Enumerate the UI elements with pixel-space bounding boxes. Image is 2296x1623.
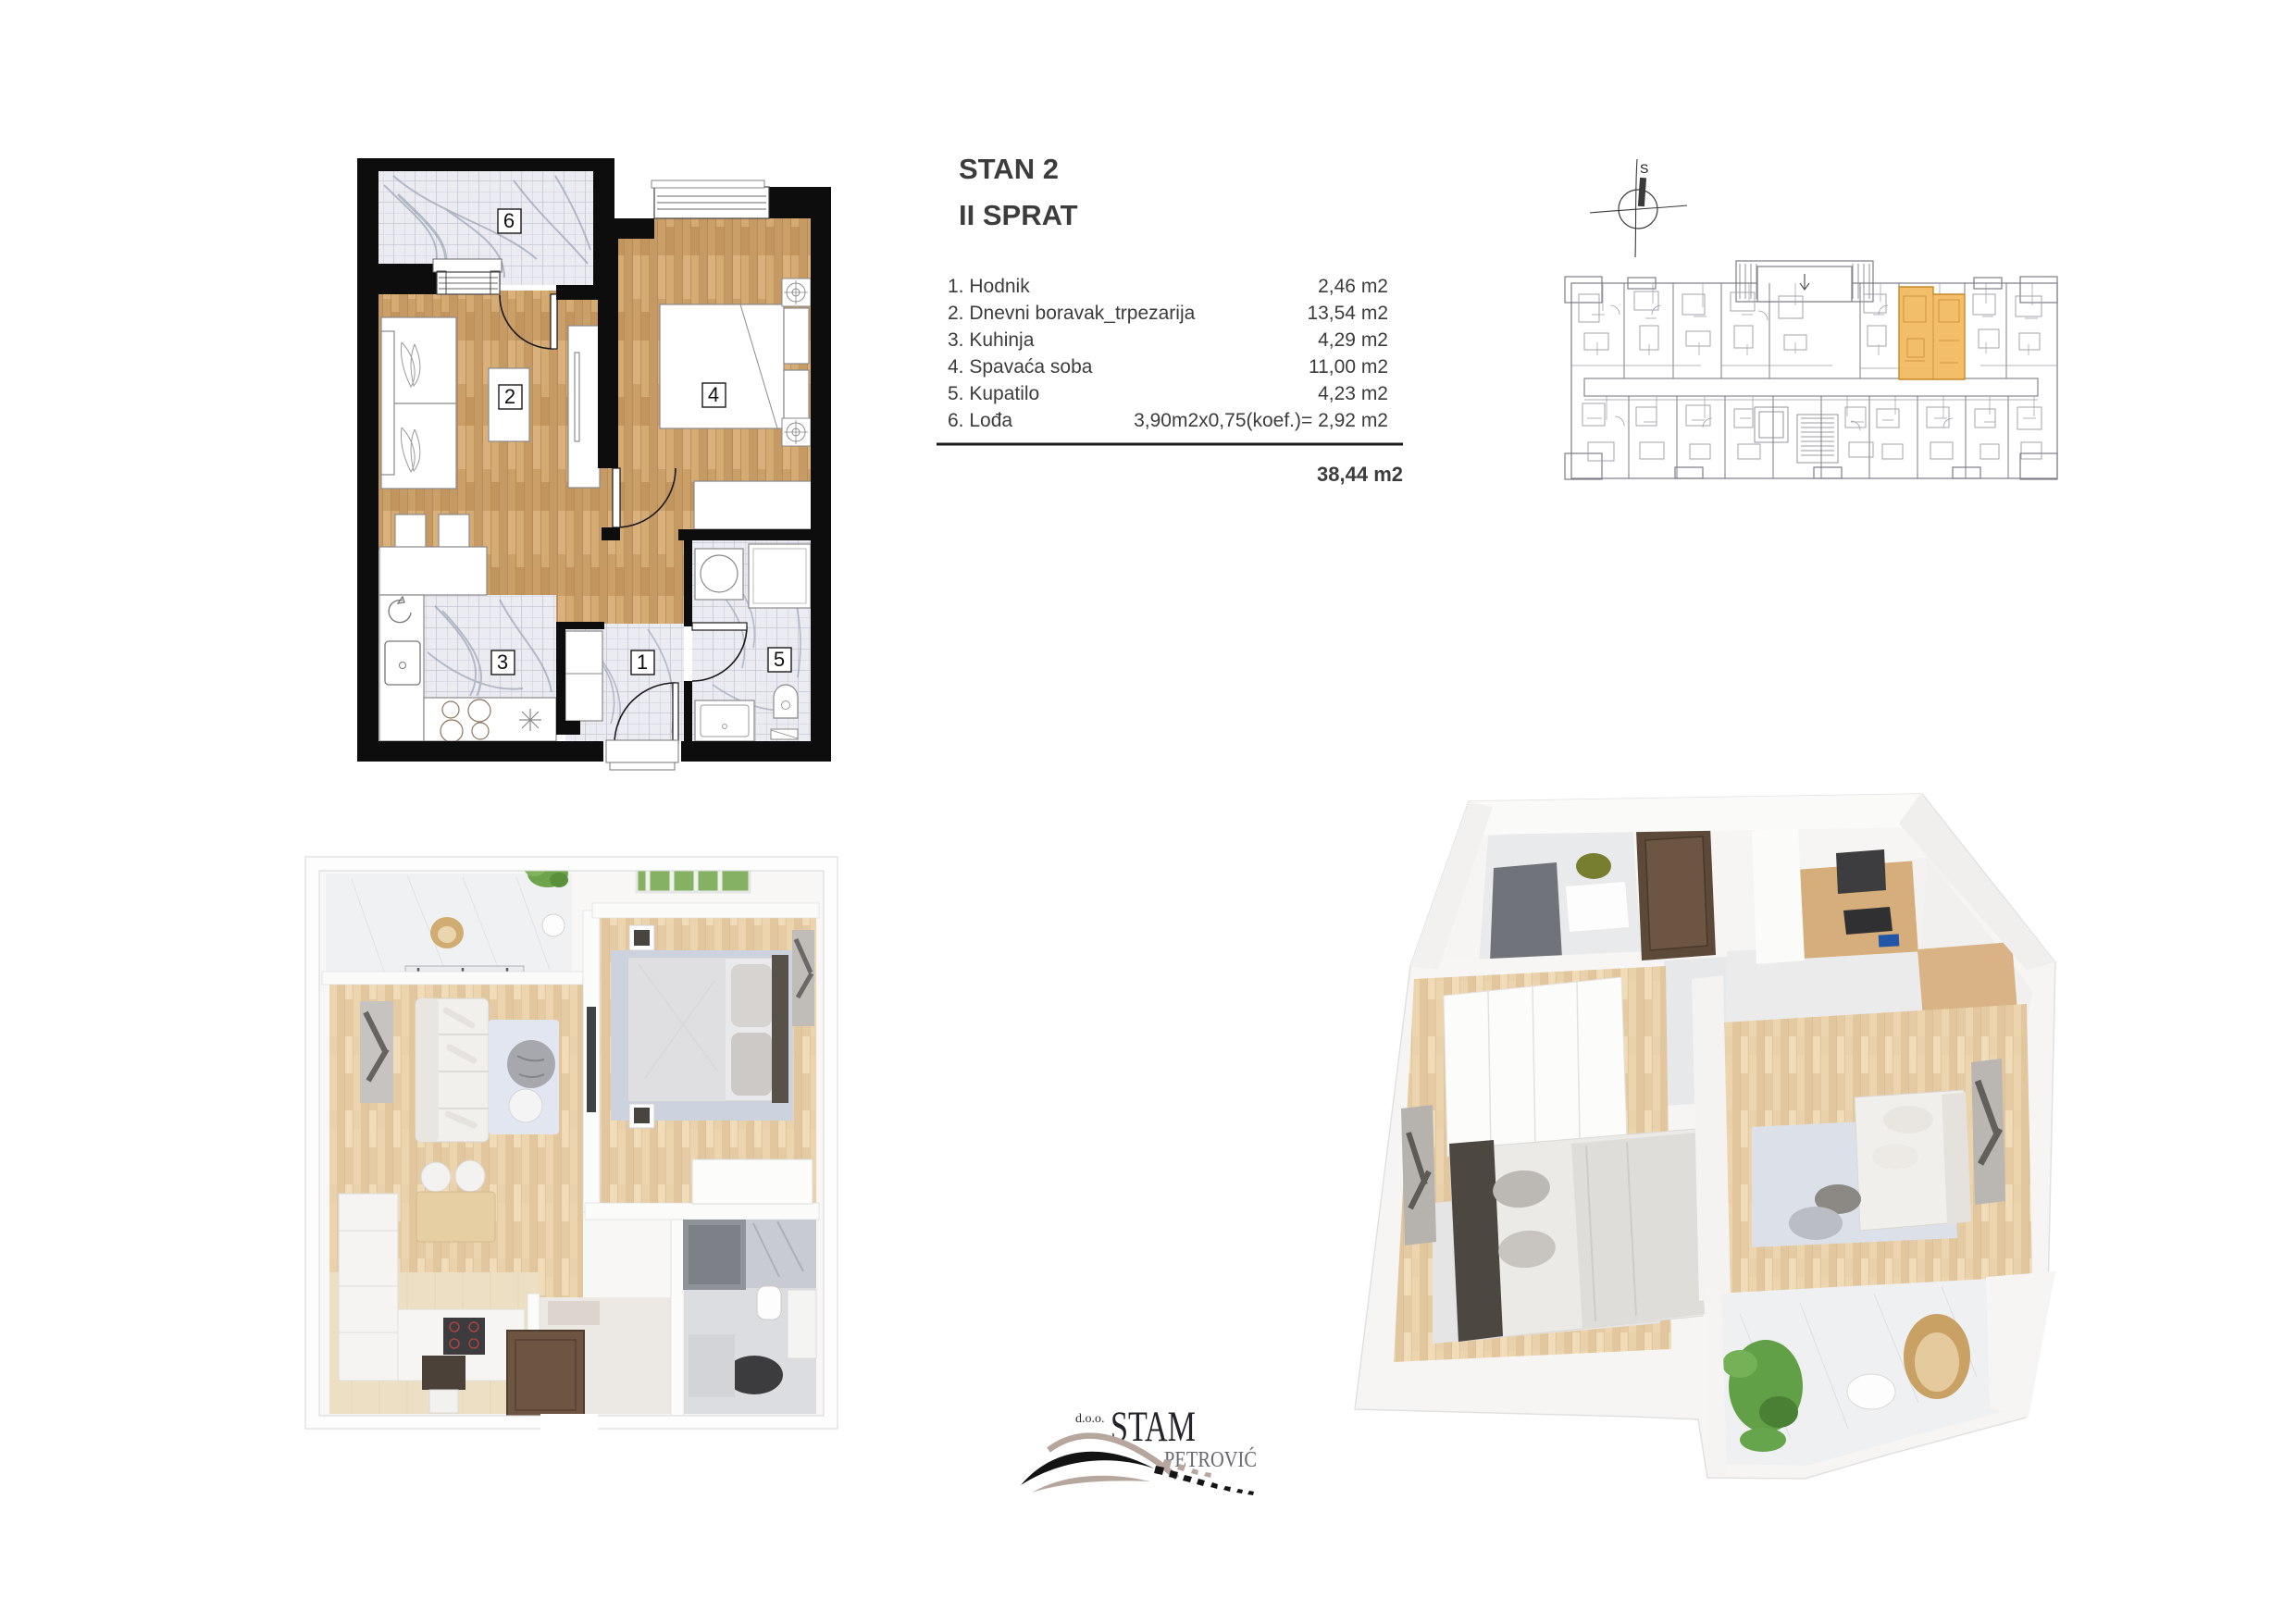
svg-text:2: 2 (504, 385, 515, 408)
svg-text:3. Kuhinja: 3. Kuhinja (948, 329, 1035, 351)
svg-text:3: 3 (497, 650, 508, 674)
svg-text:1: 1 (637, 650, 648, 674)
svg-text:2,46 m2: 2,46 m2 (1318, 276, 1388, 297)
svg-text:6: 6 (503, 209, 515, 232)
svg-text:38,44 m2: 38,44 m2 (1317, 463, 1403, 486)
svg-text:II SPRAT: II SPRAT (959, 199, 1078, 231)
svg-text:S: S (1640, 161, 1648, 176)
svg-text:4. Spavaća soba: 4. Spavaća soba (948, 356, 1093, 378)
svg-text:11,00 m2: 11,00 m2 (1309, 356, 1388, 378)
svg-text:6. Lođa: 6. Lođa (948, 410, 1012, 431)
svg-text:4: 4 (708, 383, 719, 406)
svg-text:13,54 m2: 13,54 m2 (1307, 303, 1388, 324)
svg-text:3,90m2x0,75(koef.)= 2,92 m2: 3,90m2x0,75(koef.)= 2,92 m2 (1134, 410, 1388, 431)
svg-text:d.o.o.: d.o.o. (1075, 1412, 1105, 1426)
svg-text:1. Hodnik: 1. Hodnik (948, 276, 1030, 297)
svg-text:5. Kupatilo: 5. Kupatilo (948, 383, 1039, 404)
svg-text:STAN 2: STAN 2 (959, 153, 1059, 185)
svg-text:4,29 m2: 4,29 m2 (1318, 329, 1388, 351)
svg-text:2. Dnevni boravak_trpezarija: 2. Dnevni boravak_trpezarija (948, 303, 1196, 324)
svg-text:4,23 m2: 4,23 m2 (1318, 383, 1388, 404)
svg-text:5: 5 (774, 648, 785, 671)
